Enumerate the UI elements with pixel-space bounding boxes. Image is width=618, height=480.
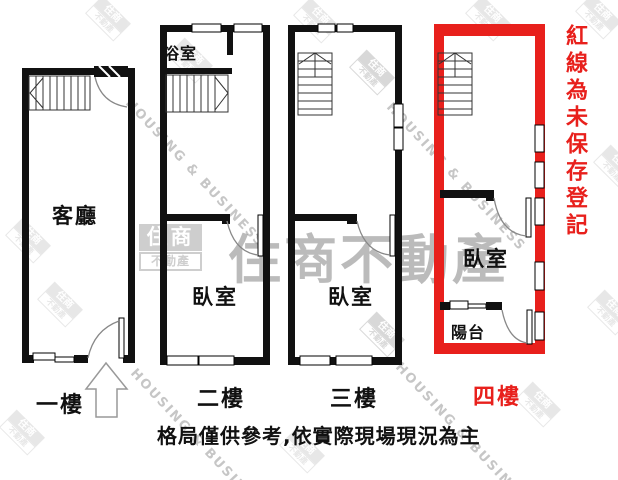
floor-label-3f: 三樓 (330, 381, 378, 413)
room-label-balcony: 陽台 (451, 319, 485, 343)
disclaimer-text: 格局僅供參考,依實際現場現況為主 (157, 420, 481, 449)
room-label-bathroom: 浴室 (163, 40, 197, 64)
room-label-living: 客廳 (52, 200, 98, 230)
room-label-bedroom-4f: 臥室 (463, 243, 509, 273)
floor-label-1f: 一樓 (36, 387, 84, 419)
red-line-note: 紅線為未保存登記 (558, 24, 590, 234)
floorplan-image: 住商不動產 住商不動產 住商不動產 住商不動產 住商不動產 住商不動產 住商不動… (0, 0, 618, 480)
room-label-bedroom-3f: 臥室 (328, 281, 374, 311)
floor-label-4f: 四樓 (473, 379, 521, 411)
room-label-bedroom-2f: 臥室 (192, 281, 238, 311)
floor-label-2f: 二樓 (197, 381, 245, 413)
label-layer: 客廳 浴室 臥室 臥室 臥室 陽台 一樓 二樓 三樓 四樓 紅線為未保存登記 格… (0, 0, 618, 480)
